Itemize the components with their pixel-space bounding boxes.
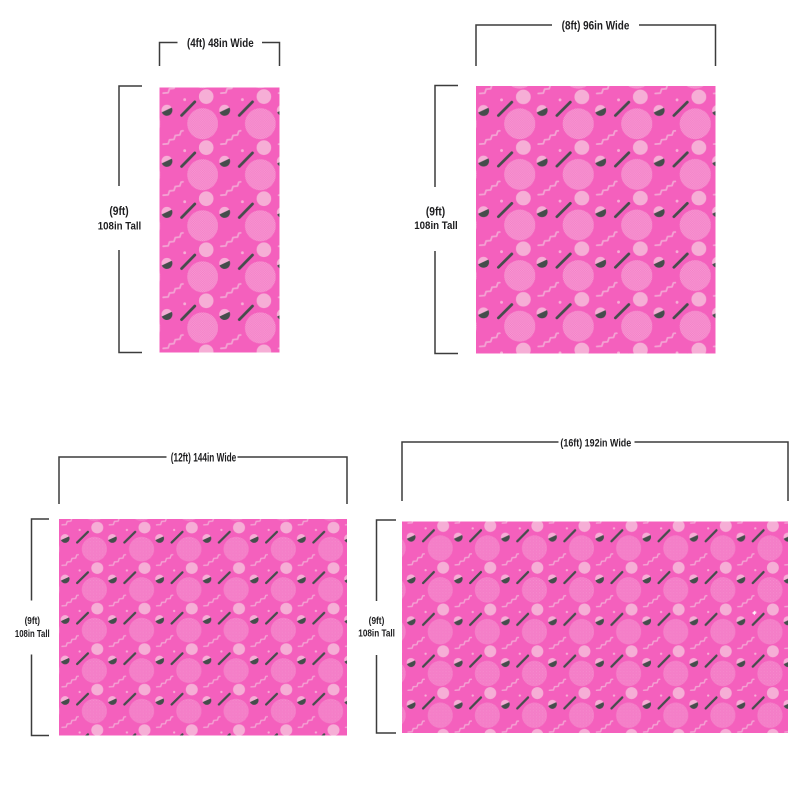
svg-text:(9ft): (9ft) <box>109 205 129 218</box>
svg-text:(4ft) 48in Wide: (4ft) 48in Wide <box>187 37 254 50</box>
svg-text:108in Tall: 108in Tall <box>15 628 50 639</box>
svg-text:(16ft) 192in Wide: (16ft) 192in Wide <box>560 437 631 449</box>
svg-text:(9ft): (9ft) <box>25 614 40 626</box>
svg-text:108in Tall: 108in Tall <box>414 219 458 232</box>
svg-text:(12ft) 144in Wide: (12ft) 144in Wide <box>171 452 237 465</box>
svg-text:108in Tall: 108in Tall <box>98 220 142 233</box>
svg-text:(9ft): (9ft) <box>426 206 446 219</box>
svg-text:(8ft) 96in Wide: (8ft) 96in Wide <box>562 20 630 33</box>
svg-text:108in Tall: 108in Tall <box>358 627 395 639</box>
svg-text:(9ft): (9ft) <box>369 615 385 627</box>
